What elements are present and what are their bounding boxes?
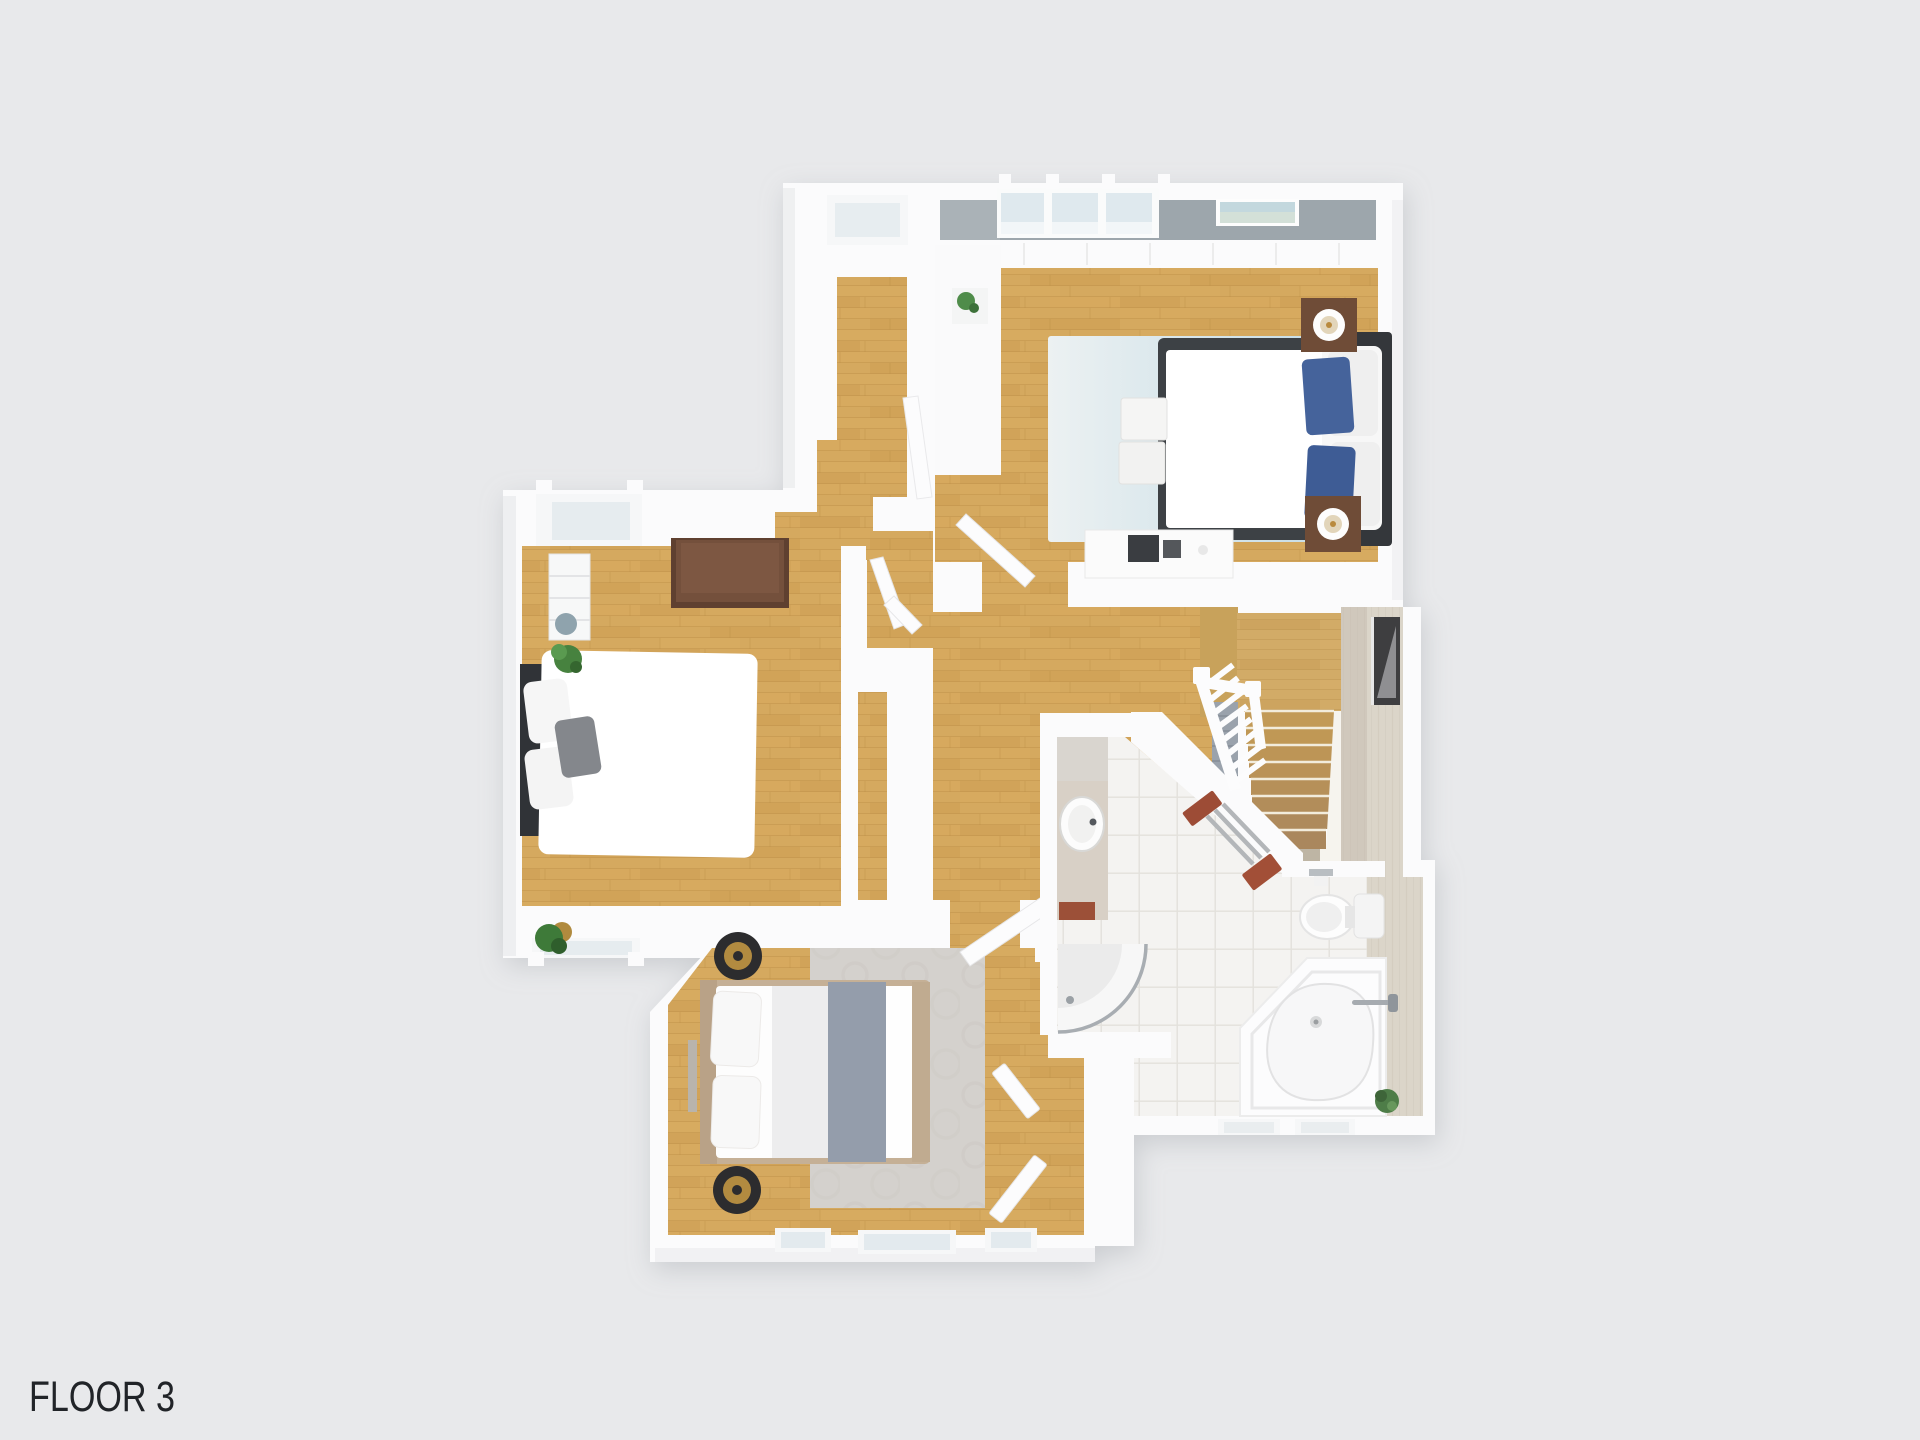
svg-text:FLOOR 3: FLOOR 3	[29, 1373, 175, 1421]
